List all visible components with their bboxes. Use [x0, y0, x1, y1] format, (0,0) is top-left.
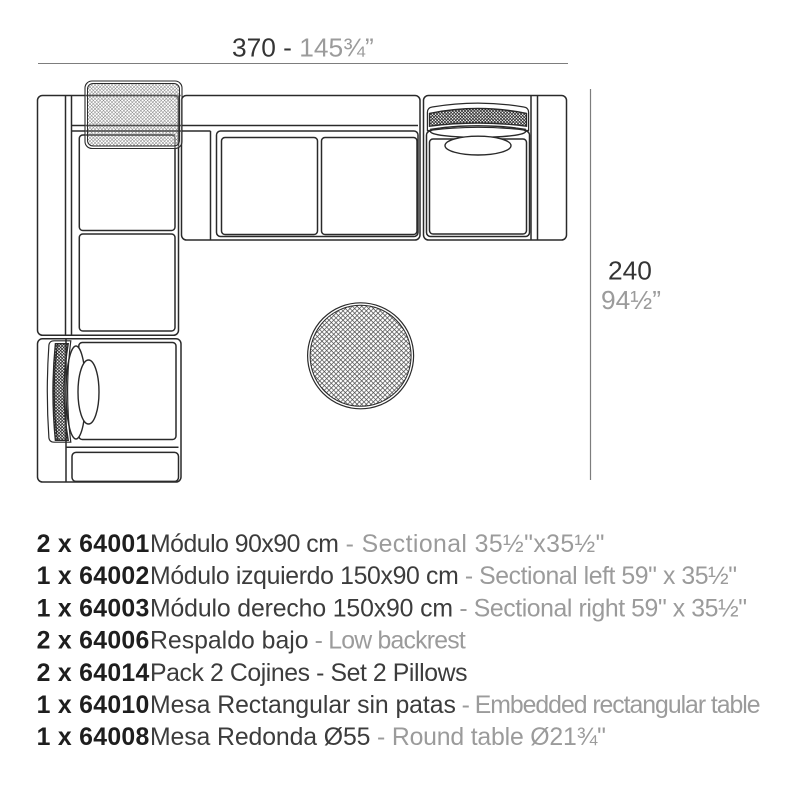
- svg-text:1 x 64003Módulo derecho 150x90: 1 x 64003Módulo derecho 150x90 cm - Sect…: [37, 595, 747, 622]
- svg-text:2 x 64001Módulo 90x90 cm - Sec: 2 x 64001Módulo 90x90 cm - Sectional 35½…: [37, 531, 605, 558]
- svg-text:1 x 64010Mesa Rectangular sin: 1 x 64010Mesa Rectangular sin patas - Em…: [37, 692, 760, 719]
- svg-text:2 x 64006Respaldo bajo - Low b: 2 x 64006Respaldo bajo - Low backrest: [37, 628, 466, 655]
- svg-text:2 x 64014Pack 2 Cojines - Set: 2 x 64014Pack 2 Cojines - Set 2 Pillows: [37, 660, 467, 687]
- svg-text:1 x 64002Módulo izquierdo 150x: 1 x 64002Módulo izquierdo 150x90 cm - Se…: [37, 563, 737, 590]
- svg-text:94½”: 94½”: [601, 285, 661, 315]
- svg-text:1 x 64008Mesa Redonda Ø55 - Ro: 1 x 64008Mesa Redonda Ø55 - Round table …: [37, 724, 606, 751]
- svg-text:240: 240: [608, 256, 652, 286]
- svg-text:370 - 145¾”: 370 - 145¾”: [232, 33, 374, 63]
